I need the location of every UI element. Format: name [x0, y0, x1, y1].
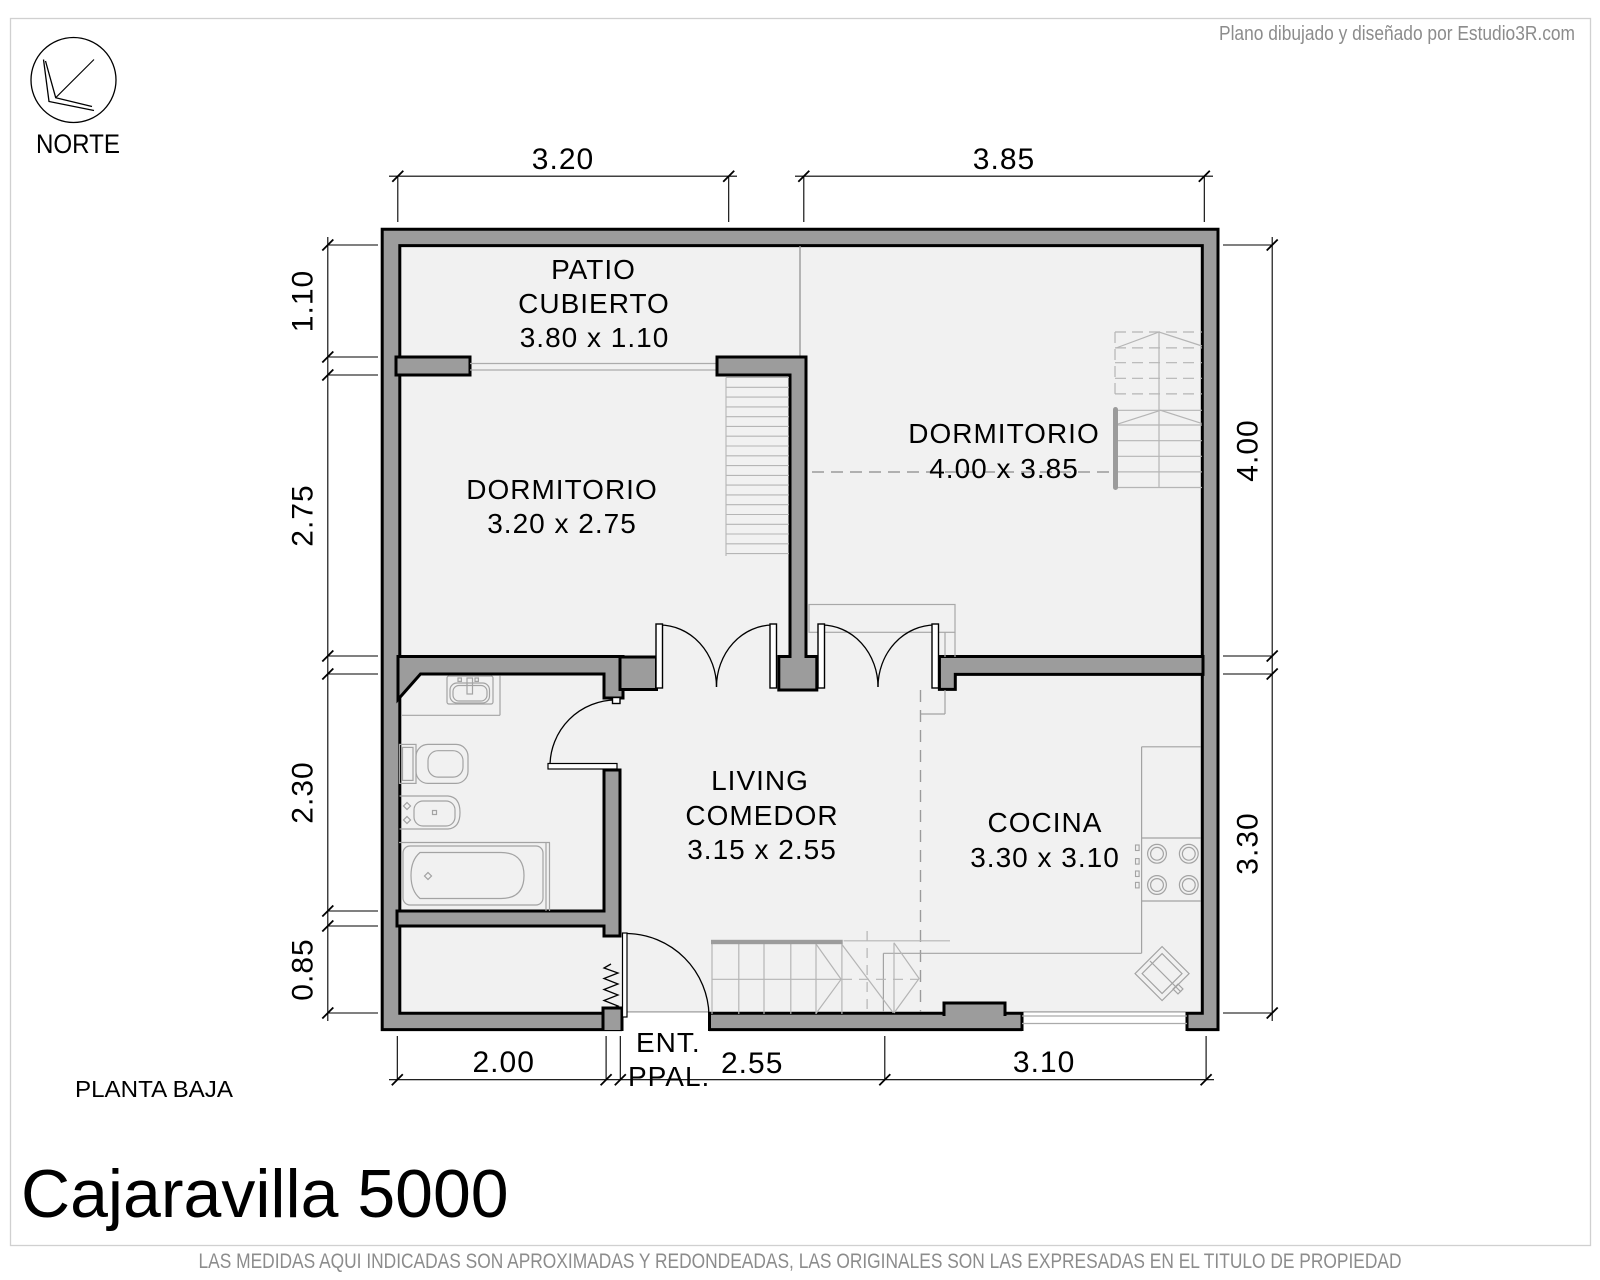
svg-text:4.00 x 3.85: 4.00 x 3.85	[929, 453, 1079, 484]
svg-text:3.85: 3.85	[973, 143, 1035, 176]
svg-text:PLANTA BAJA: PLANTA BAJA	[75, 1076, 234, 1102]
svg-text:PPAL.: PPAL.	[628, 1061, 710, 1092]
svg-text:1.10: 1.10	[287, 270, 320, 332]
svg-text:COCINA: COCINA	[988, 807, 1103, 838]
svg-text:PATIO: PATIO	[551, 254, 636, 285]
svg-text:CUBIERTO: CUBIERTO	[518, 288, 670, 319]
svg-text:3.15 x 2.55: 3.15 x 2.55	[687, 834, 837, 865]
svg-text:2.55: 2.55	[721, 1047, 783, 1080]
svg-text:3.10: 3.10	[1013, 1046, 1075, 1079]
svg-text:Cajaravilla 5000: Cajaravilla 5000	[21, 1156, 509, 1232]
svg-text:DORMITORIO: DORMITORIO	[908, 418, 1099, 449]
svg-text:DORMITORIO: DORMITORIO	[466, 474, 657, 505]
svg-text:LAS MEDIDAS AQUI INDICADAS SON: LAS MEDIDAS AQUI INDICADAS SON APROXIMAD…	[199, 1250, 1402, 1273]
svg-text:2.30: 2.30	[287, 761, 320, 823]
svg-text:Plano dibujado y diseñado por: Plano dibujado y diseñado por Estudio3R.…	[1219, 23, 1575, 45]
svg-text:3.80 x 1.10: 3.80 x 1.10	[520, 322, 670, 353]
svg-text:COMEDOR: COMEDOR	[685, 800, 838, 831]
svg-text:3.30: 3.30	[1232, 812, 1265, 874]
svg-text:0.85: 0.85	[287, 938, 320, 1000]
svg-text:ENT.: ENT.	[636, 1027, 701, 1058]
svg-text:3.20 x 2.75: 3.20 x 2.75	[487, 508, 637, 539]
svg-text:4.00: 4.00	[1232, 419, 1265, 481]
svg-text:LIVING: LIVING	[711, 765, 809, 796]
svg-text:3.20: 3.20	[532, 143, 594, 176]
svg-text:2.75: 2.75	[287, 484, 320, 546]
svg-text:3.30 x 3.10: 3.30 x 3.10	[970, 842, 1120, 873]
svg-text:2.00: 2.00	[473, 1046, 535, 1079]
svg-text:NORTE: NORTE	[36, 129, 120, 159]
